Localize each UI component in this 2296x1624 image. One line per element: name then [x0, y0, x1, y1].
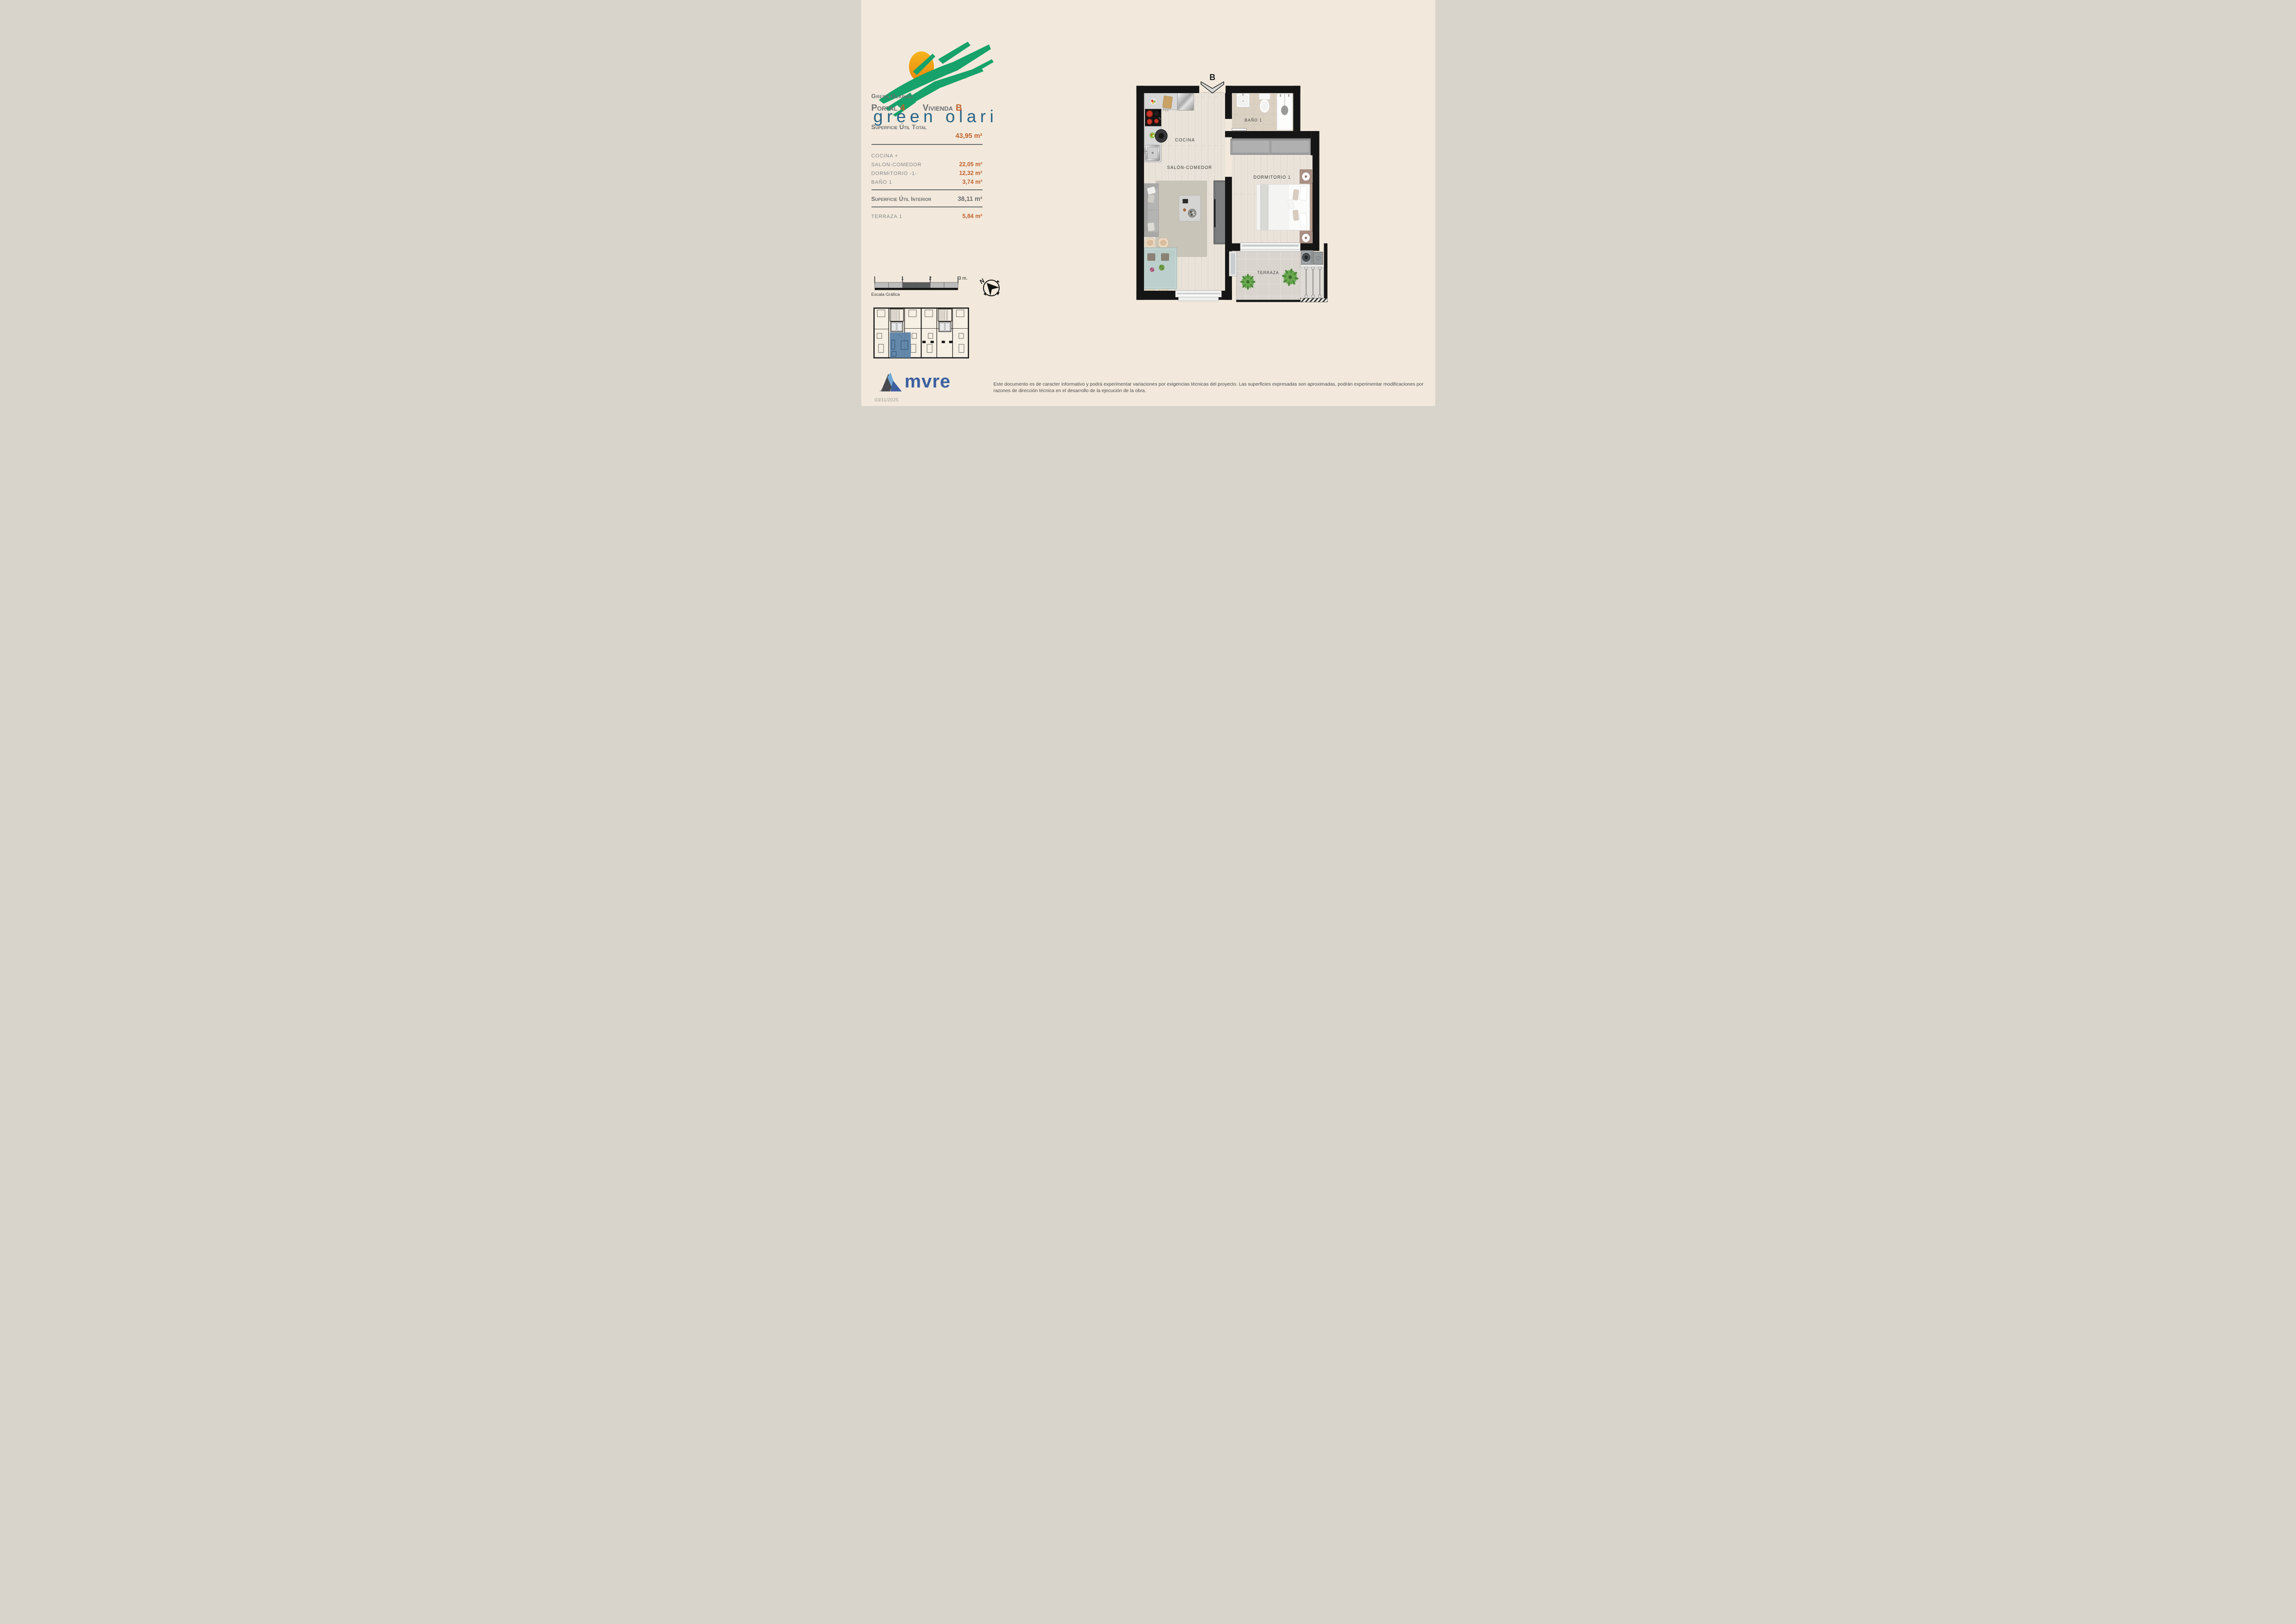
main-floor-plan: COCINA SALÓN-COMEDOR BAÑO 1 DORMITORIO 1… — [1129, 73, 1332, 307]
label-living: SALÓN-COMEDOR — [1167, 165, 1212, 170]
legal-disclaimer: Este documento es de caracter informativ… — [994, 381, 1431, 395]
stair-core-icon — [938, 309, 952, 332]
mvre-wordmark: mvre — [905, 372, 951, 391]
total-area-value: 43,95 m² — [871, 132, 983, 140]
floorplan-document: green olarizu Green Olarizu Portal 4 Viv… — [861, 0, 1435, 406]
cooktop-icon — [1145, 109, 1161, 126]
label-terrace: TERRAZA — [1257, 270, 1279, 275]
graphic-scale-bar: 1 2 3 m. — [871, 273, 987, 293]
washing-machine-icon — [1301, 250, 1313, 264]
threshold-hatch — [1300, 298, 1327, 302]
divider — [871, 144, 983, 145]
scale-caption: Escala Gráfica — [871, 292, 900, 297]
dwelling-letter: B — [956, 103, 962, 113]
label-bath: BAÑO 1 — [1244, 118, 1262, 122]
room-row-bath: BAÑO 1 3,74 m² — [871, 179, 983, 185]
label-bedroom: DORMITORIO 1 — [1253, 175, 1291, 180]
terrace-area-row: TERRAZA 1 5,84 m² — [871, 213, 983, 219]
portal-number: 4 — [900, 103, 905, 113]
living-room-window — [1175, 291, 1221, 301]
utility-box-icon — [1313, 252, 1323, 264]
headboard — [1310, 183, 1312, 231]
entrance-letter: B — [1209, 73, 1215, 82]
fridge-icon — [1177, 93, 1194, 110]
shower-icon — [1276, 94, 1292, 130]
unit-info-panel: Green Olarizu Portal 4 Vivienda B Superf… — [871, 93, 983, 219]
scale-segments-icon — [875, 282, 958, 288]
placemat-icon — [1161, 254, 1169, 261]
salad-plate-icon — [1150, 133, 1155, 138]
room-row-kitchen: COCINA + — [871, 153, 983, 159]
nightstand — [1300, 231, 1312, 245]
total-area-label: Superficie Útil Total — [871, 124, 983, 131]
scale-tick-2: 2 — [929, 276, 932, 281]
entrance-marker: B — [1201, 73, 1224, 93]
nightstand — [1300, 169, 1312, 183]
flowers-icon — [1150, 267, 1154, 272]
portal-dwelling-line: Portal 4 Vivienda B — [871, 103, 983, 113]
interior-area-row: Superficie Útil Interior 38,11 m² — [871, 195, 983, 202]
toilet-icon — [1259, 94, 1270, 112]
room-row-living: SALON-COMEDOR 22,05 m² — [871, 161, 983, 168]
bathroom-sink-icon — [1237, 93, 1249, 107]
coffee-cup-icon — [1183, 209, 1185, 212]
pillow-icon — [1147, 194, 1154, 203]
north-compass-icon: N — [979, 276, 1002, 299]
kitchen-sink-icon — [1143, 145, 1159, 161]
pillow-icon — [1147, 223, 1155, 231]
scale-tick-1: 1 — [901, 276, 904, 281]
portal-label: Portal — [871, 103, 897, 113]
placemat-icon — [1147, 254, 1155, 261]
entrance-arrow-icon — [1201, 82, 1224, 93]
dwelling-label: Vivienda — [923, 103, 953, 113]
scale-baseline — [875, 288, 958, 290]
tv-screen-icon — [1214, 199, 1215, 227]
divider — [871, 206, 983, 207]
room-area-list: COCINA + SALON-COMEDOR 22,05 m² DORMITOR… — [871, 153, 983, 185]
divider — [871, 189, 983, 190]
double-bed — [1257, 183, 1312, 231]
wardrobe — [1231, 138, 1311, 154]
sofa — [1144, 183, 1158, 237]
drying-area-floor — [1300, 265, 1324, 298]
coffee-table — [1179, 195, 1201, 221]
project-name: Green Olarizu — [871, 93, 983, 100]
label-kitchen: COCINA — [1175, 137, 1195, 143]
plant-pot-icon — [1159, 265, 1164, 271]
bedroom-terrace-window — [1240, 243, 1300, 251]
stair-core-icon — [890, 309, 903, 332]
mvre-logo-icon — [878, 370, 904, 394]
document-date: 03/11/2025 — [875, 397, 899, 403]
tv-unit — [1213, 181, 1226, 244]
building-key-plan — [872, 307, 970, 361]
bed-throw-icon — [1260, 184, 1269, 230]
terrace-sliding-door — [1229, 251, 1236, 276]
tablet-icon — [1182, 199, 1188, 203]
scale-tick-3: 3 m. — [958, 276, 967, 281]
room-row-bedroom: DORMITORIO -1- 12,32 m² — [871, 170, 983, 176]
decor-tray-icon — [1188, 209, 1196, 218]
drying-shelf — [1300, 265, 1324, 267]
terrace-plant-icon — [1240, 274, 1255, 290]
highlighted-unit-b — [890, 332, 910, 358]
